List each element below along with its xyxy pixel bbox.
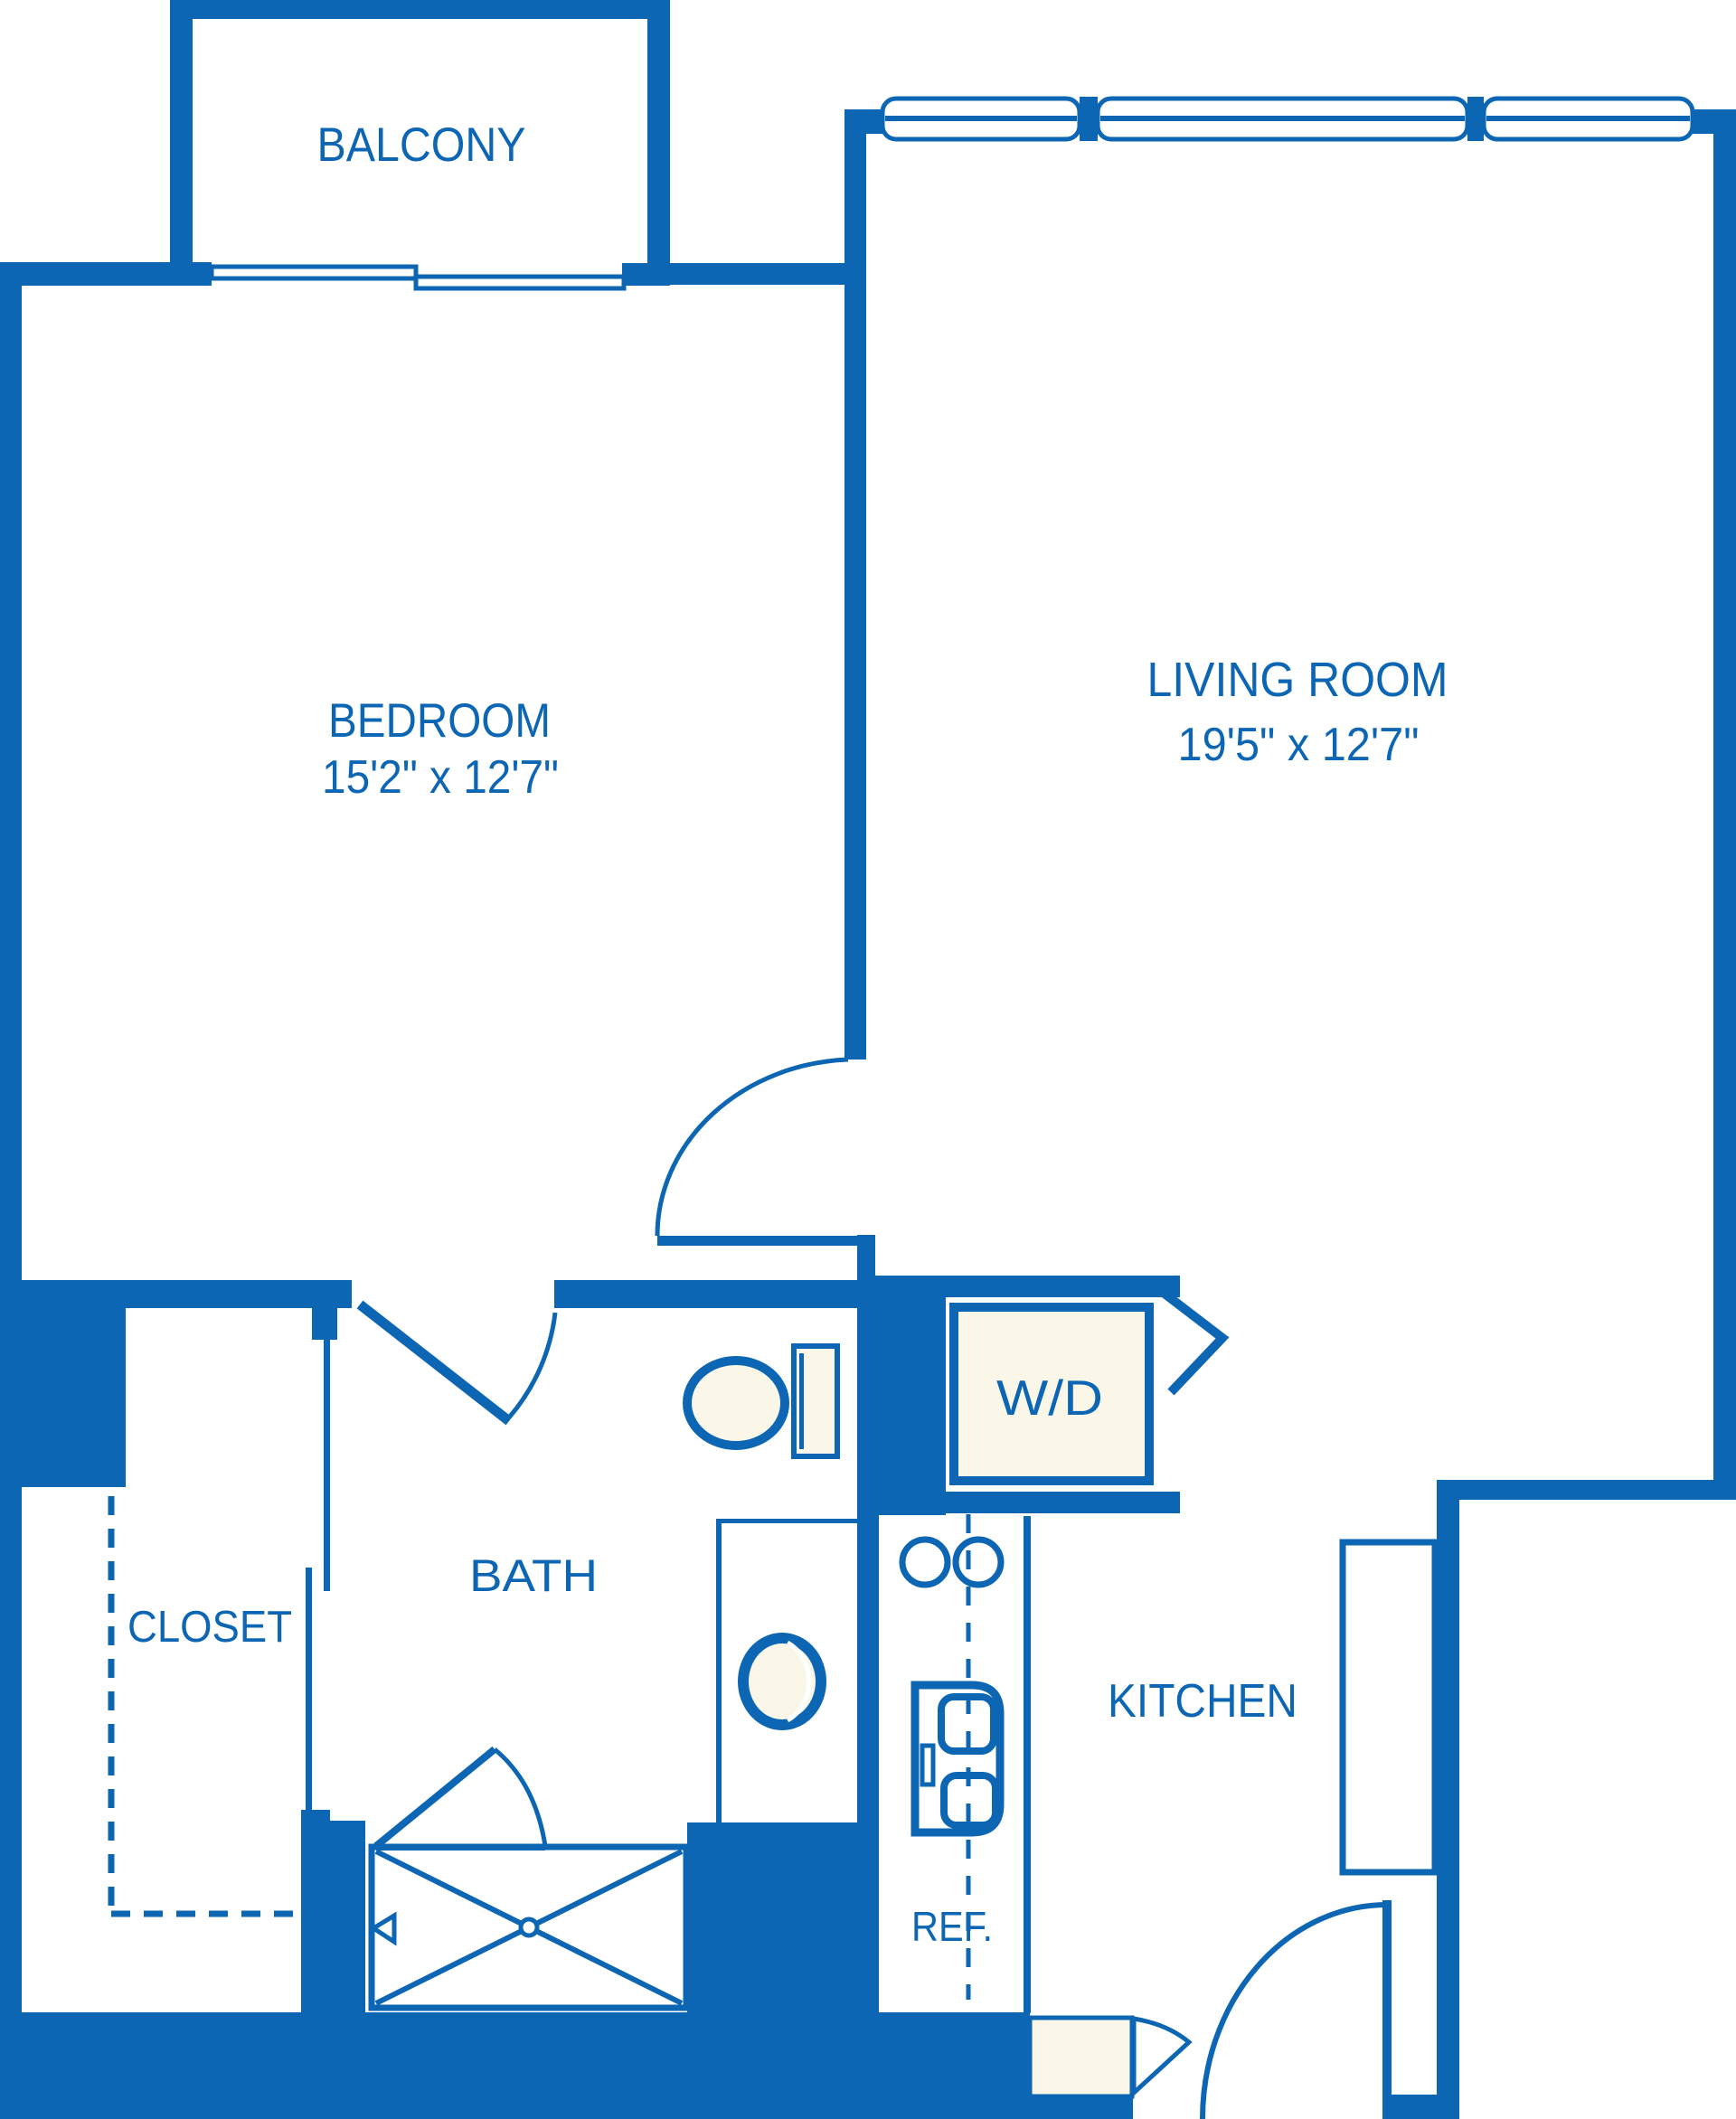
svg-text:15'2" x 12'7": 15'2" x 12'7" — [322, 751, 559, 804]
svg-text:W/D: W/D — [996, 1370, 1103, 1426]
svg-text:LIVING ROOM: LIVING ROOM — [1147, 653, 1448, 707]
svg-text:19'5" x 12'7": 19'5" x 12'7" — [1178, 719, 1420, 771]
svg-text:BEDROOM: BEDROOM — [328, 694, 551, 748]
svg-text:BATH: BATH — [469, 1550, 598, 1601]
svg-text:CLOSET: CLOSET — [127, 1603, 292, 1652]
svg-text:REF.: REF. — [911, 1903, 993, 1950]
svg-text:KITCHEN: KITCHEN — [1108, 1675, 1297, 1728]
svg-text:BALCONY: BALCONY — [317, 118, 526, 172]
